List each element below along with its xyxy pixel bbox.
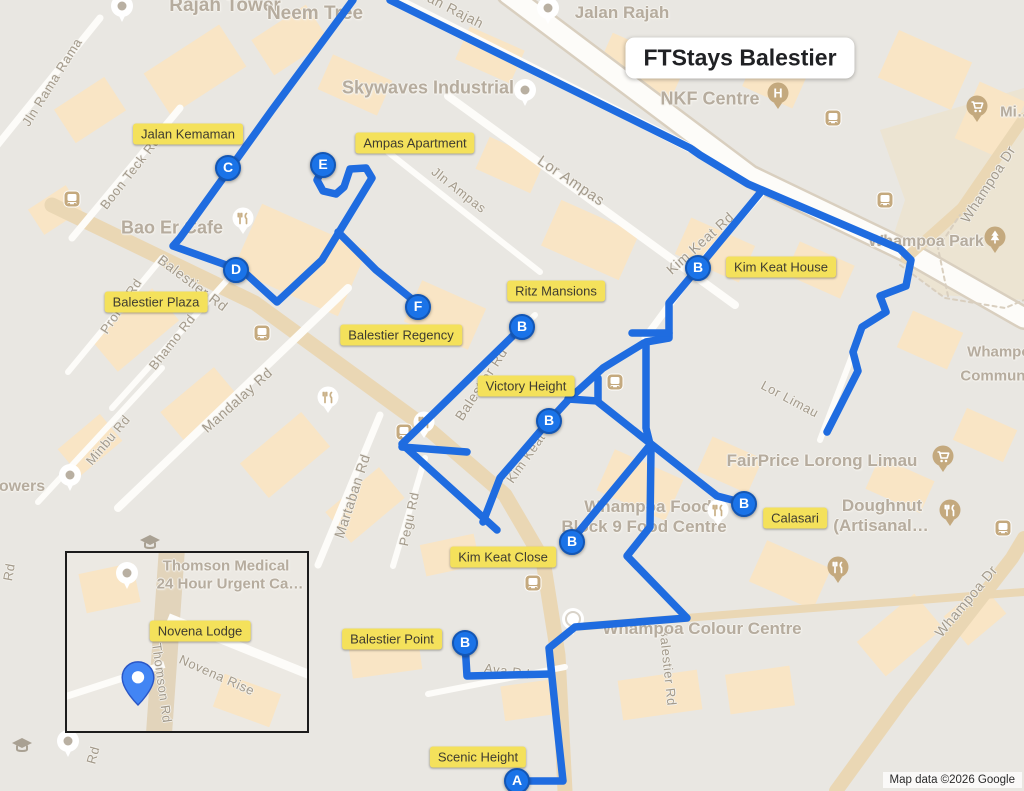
marker-b-balestier-point[interactable]: B	[452, 630, 478, 656]
map-attribution: Map data ©2026 Google	[883, 772, 1022, 788]
place-label[interactable]: Calasari	[763, 508, 827, 529]
marker-a-scenic-height[interactable]: A	[504, 768, 530, 791]
marker-b-victory-height[interactable]: B	[536, 408, 562, 434]
marker-d-balestier-plaza[interactable]: D	[223, 257, 249, 283]
place-label[interactable]: Balestier Point	[342, 629, 442, 650]
route-ava	[465, 643, 551, 676]
marker-b-kim-keat-close[interactable]: B	[559, 529, 585, 555]
novena-lodge-pin-icon[interactable]	[120, 661, 156, 707]
route-kim-keat-close	[572, 444, 651, 540]
place-label[interactable]: Kim Keat Close	[450, 547, 556, 568]
map-canvas[interactable]: FTStays Balestier Map data ©2026 Google …	[0, 0, 1024, 791]
place-label[interactable]: Balestier Regency	[340, 325, 462, 346]
marker-e-ampas-apartment[interactable]: E	[310, 152, 336, 178]
place-label[interactable]: Ampas Apartment	[355, 133, 474, 154]
marker-f-balestier-regency[interactable]: F	[405, 294, 431, 320]
place-label[interactable]: Novena Lodge	[150, 621, 251, 642]
route-link	[568, 399, 598, 401]
page-title: FTStays Balestier	[625, 38, 854, 79]
marker-b-kim-keat-house[interactable]: B	[685, 255, 711, 281]
poi-label[interactable]: 24 Hour Urgent Ca…	[157, 576, 304, 593]
route-kemaman-loop	[173, 0, 372, 302]
marker-b-calasari[interactable]: B	[731, 491, 757, 517]
marker-b-ritz-mansions[interactable]: B	[509, 314, 535, 340]
place-label[interactable]: Scenic Height	[430, 747, 526, 768]
route-spur-west	[402, 447, 467, 452]
marker-c-jalan-kemaman[interactable]: C	[215, 155, 241, 181]
thomson-medical-pin-icon[interactable]	[114, 561, 140, 591]
place-label[interactable]: Balestier Plaza	[105, 292, 208, 313]
poi-label[interactable]: Thomson Medical	[163, 558, 290, 575]
place-label[interactable]: Ritz Mansions	[507, 281, 605, 302]
place-label[interactable]: Kim Keat House	[726, 257, 836, 278]
route-to-f	[338, 232, 418, 304]
place-label[interactable]: Victory Height	[478, 376, 575, 397]
route-balestier-diag	[402, 327, 522, 530]
place-label[interactable]: Jalan Kemaman	[133, 124, 243, 145]
route-victory	[483, 343, 644, 522]
